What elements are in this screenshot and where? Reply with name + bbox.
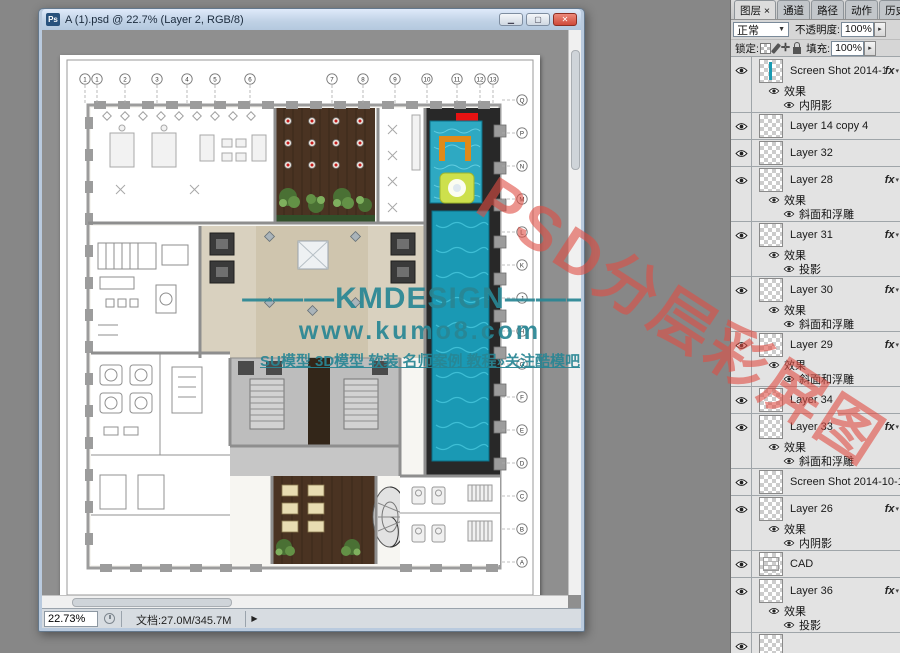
effect-item-row[interactable]: 投影	[731, 618, 900, 632]
visibility-eye-icon[interactable]	[735, 396, 748, 405]
scrollbar-thumb[interactable]	[72, 598, 232, 607]
svg-text:G: G	[520, 361, 525, 368]
tab-channels[interactable]: 通道	[777, 0, 810, 19]
layer-name[interactable]: Layer 33	[790, 421, 885, 433]
eye-column	[731, 414, 752, 440]
layer-name[interactable]: Layer 30	[790, 284, 885, 296]
effects-row[interactable]: 效果	[731, 248, 900, 262]
opacity-label: 不透明度:	[795, 22, 840, 37]
maximize-button[interactable]: ▢	[526, 13, 550, 26]
app-background: { "document_window": { "title": "A (1).p…	[0, 0, 900, 653]
svg-text:D: D	[520, 460, 525, 467]
floor-plan-image: 112345678910111213 QPNMLKJHGFEDCBA	[60, 55, 540, 600]
effects-row[interactable]: 效果	[731, 440, 900, 454]
layer-thumbnail[interactable]	[759, 333, 783, 357]
svg-text:Q: Q	[520, 97, 525, 104]
layer-thumbnail[interactable]	[759, 470, 783, 494]
effects-row[interactable]: 效果	[731, 522, 900, 536]
effect-item-row[interactable]: 斜面和浮雕	[731, 317, 900, 331]
lock-transparency-icon[interactable]	[760, 43, 771, 54]
horizontal-scrollbar[interactable]	[42, 595, 568, 608]
visibility-eye-icon[interactable]	[783, 210, 795, 218]
layer-row[interactable]: Layer 30fx▾	[731, 276, 900, 303]
layer-name[interactable]: Layer 14 copy 4	[790, 120, 900, 132]
layer-row[interactable]: Layer 14 copy 4	[731, 112, 900, 139]
svg-text:1: 1	[83, 77, 87, 84]
layer-row[interactable]: Layer 26fx▾	[731, 495, 900, 522]
visibility-eye-icon[interactable]	[735, 149, 748, 158]
fx-badge[interactable]: fx	[885, 65, 895, 77]
svg-text:2: 2	[123, 77, 127, 84]
visibility-eye-icon[interactable]	[768, 87, 780, 95]
psd-file-icon: Ps	[46, 13, 60, 26]
visibility-eye-icon[interactable]	[735, 231, 748, 240]
close-button[interactable]: ✕	[553, 13, 577, 26]
visibility-eye-icon[interactable]	[783, 375, 795, 383]
layer-row[interactable]: Layer 31fx▾	[731, 221, 900, 248]
svg-text:5: 5	[213, 77, 217, 84]
document-page: 112345678910111213 QPNMLKJHGFEDCBA	[60, 55, 540, 600]
svg-text:6: 6	[248, 77, 252, 84]
lock-pixels-brush-icon[interactable]	[771, 43, 781, 54]
layer-thumbnail[interactable]	[759, 388, 783, 412]
layer-name[interactable]: Layer 29	[790, 339, 885, 351]
effect-name: 斜面和浮雕	[799, 206, 854, 222]
svg-text:C: C	[520, 493, 525, 500]
layer-thumbnail[interactable]	[759, 141, 783, 165]
eye-column	[731, 578, 752, 604]
layer-thumbnail[interactable]	[759, 114, 783, 138]
fx-collapse-chevron-icon[interactable]: ▾	[895, 505, 899, 513]
fill-label: 填充:	[806, 41, 830, 56]
effect-name: 投影	[799, 261, 821, 277]
window-titlebar[interactable]: Ps A (1).psd @ 22.7% (Layer 2, RGB/8) ▁ …	[42, 9, 581, 30]
fill-value-field[interactable]: 100%	[831, 41, 864, 56]
svg-text:1: 1	[95, 77, 99, 84]
layer-name[interactable]: Layer 31	[790, 229, 885, 241]
visibility-eye-icon[interactable]	[735, 423, 748, 432]
layer-row[interactable]: Layer 34	[731, 386, 900, 413]
layer-name[interactable]: Screen Shot 2014-10-16 at 4.5...	[790, 476, 900, 488]
visibility-eye-icon[interactable]	[783, 457, 795, 465]
layer-name[interactable]: Layer 26	[790, 503, 885, 515]
eye-column	[731, 277, 752, 303]
visibility-eye-icon[interactable]	[783, 320, 795, 328]
svg-text:7: 7	[330, 77, 334, 84]
visibility-eye-icon[interactable]	[735, 286, 748, 295]
fx-collapse-chevron-icon[interactable]: ▾	[895, 286, 899, 294]
visibility-eye-icon[interactable]	[768, 251, 780, 259]
panel-tab-bar: 图层 × 通道 路径 动作 历史记录	[731, 0, 900, 20]
fx-badge[interactable]: fx	[885, 284, 895, 296]
effect-item-row[interactable]: 斜面和浮雕	[731, 454, 900, 468]
visibility-eye-icon[interactable]	[735, 505, 748, 514]
fx-collapse-chevron-icon[interactable]: ▾	[895, 176, 899, 184]
layers-panel: 图层 × 通道 路径 动作 历史记录 正常 ▼ 不透明度: 100% ▸ 锁定:…	[730, 0, 900, 653]
svg-text:10: 10	[424, 77, 431, 84]
fx-collapse-chevron-icon[interactable]: ▾	[895, 231, 899, 239]
layer-thumbnail[interactable]	[759, 497, 783, 521]
fx-badge[interactable]: fx	[885, 421, 895, 433]
layers-list: Screen Shot 2014-10-16 at ...fx▾效果内阴影Lay…	[731, 57, 900, 653]
effects-row[interactable]: 效果	[731, 358, 900, 372]
eye-column	[731, 633, 752, 653]
visibility-eye-icon[interactable]	[735, 478, 748, 487]
layer-thumbnail[interactable]	[759, 552, 783, 576]
visibility-eye-icon[interactable]	[735, 122, 748, 131]
layer-row[interactable]: Layer 33fx▾	[731, 413, 900, 440]
document-size-info: 文档:27.0M/345.7M	[121, 611, 246, 627]
lock-all-icon[interactable]	[793, 47, 801, 54]
layer-thumbnail[interactable]	[759, 415, 783, 439]
effect-name: 内阴影	[799, 97, 832, 113]
visibility-eye-icon[interactable]	[768, 525, 780, 533]
fx-collapse-chevron-icon[interactable]: ▾	[895, 341, 899, 349]
svg-text:12: 12	[477, 77, 484, 84]
visibility-eye-icon[interactable]	[768, 443, 780, 451]
fill-slider-button[interactable]: ▸	[864, 41, 876, 56]
effect-item-row[interactable]: 斜面和浮雕	[731, 372, 900, 386]
layer-row[interactable]: Layer 32	[731, 139, 900, 166]
effect-name: 斜面和浮雕	[799, 453, 854, 469]
svg-text:13: 13	[490, 77, 497, 84]
opacity-slider-button[interactable]: ▸	[874, 22, 886, 37]
layer-row[interactable]: Screen Shot 2014-10-16 at ...fx▾	[731, 57, 900, 84]
minimize-button[interactable]: ▁	[499, 13, 523, 26]
tab-layers[interactable]: 图层 ×	[734, 0, 776, 19]
layer-name[interactable]: Layer 36	[790, 585, 885, 597]
effects-row[interactable]: 效果	[731, 193, 900, 207]
svg-text:B: B	[520, 526, 524, 533]
status-flyout-arrow-icon[interactable]: ▶	[246, 614, 262, 623]
eye-column	[731, 222, 752, 248]
vertical-scrollbar[interactable]	[568, 30, 581, 595]
effect-item-row[interactable]: 投影	[731, 262, 900, 276]
svg-text:H: H	[520, 328, 524, 335]
svg-text:8: 8	[361, 77, 365, 84]
svg-text:J: J	[520, 295, 523, 302]
fx-collapse-chevron-icon[interactable]: ▾	[895, 67, 899, 75]
layer-thumbnail[interactable]	[759, 579, 783, 603]
blend-mode-value: 正常	[737, 22, 759, 38]
layer-name[interactable]: Layer 32	[790, 147, 900, 159]
layer-thumbnail[interactable]	[759, 223, 783, 247]
visibility-eye-icon[interactable]	[768, 607, 780, 615]
svg-text:9: 9	[393, 77, 397, 84]
layer-row[interactable]: Layer 28fx▾	[731, 166, 900, 193]
window-title: A (1).psd @ 22.7% (Layer 2, RGB/8)	[65, 14, 493, 26]
effect-item-row[interactable]: 内阴影	[731, 536, 900, 550]
effect-name: 斜面和浮雕	[799, 316, 854, 332]
layer-thumbnail[interactable]	[759, 634, 783, 653]
layer-thumbnail[interactable]	[759, 59, 783, 83]
thumbnail-content	[769, 62, 772, 80]
visibility-eye-icon[interactable]	[735, 560, 748, 569]
svg-text:4: 4	[185, 77, 189, 84]
eye-column	[731, 113, 752, 139]
effects-row[interactable]: 效果	[731, 604, 900, 618]
svg-text:P: P	[520, 130, 524, 137]
layer-thumbnail[interactable]	[759, 168, 783, 192]
layer-name[interactable]: Screen Shot 2014-10-16 at ...	[790, 65, 885, 77]
svg-text:M: M	[519, 196, 524, 203]
visibility-eye-icon[interactable]	[768, 306, 780, 314]
tab-history[interactable]: 历史记录	[879, 0, 900, 19]
visibility-eye-icon[interactable]	[768, 196, 780, 204]
layer-name[interactable]: Layer 34	[790, 394, 900, 406]
fx-badge[interactable]: fx	[885, 339, 895, 351]
eye-column	[731, 332, 752, 358]
svg-text:F: F	[520, 394, 524, 401]
version-cue-icon	[104, 613, 115, 624]
visibility-eye-icon[interactable]	[735, 66, 748, 75]
layer-row[interactable]: Screen Shot 2014-10-16 at 4.5...	[731, 468, 900, 495]
svg-text:N: N	[520, 163, 524, 170]
visibility-eye-icon[interactable]	[735, 341, 748, 350]
layer-row[interactable]: CAD	[731, 550, 900, 577]
layer-row[interactable]	[731, 632, 900, 653]
eye-column	[731, 387, 752, 413]
scrollbar-thumb[interactable]	[571, 50, 580, 170]
visibility-eye-icon[interactable]	[783, 265, 795, 273]
eye-column	[731, 167, 752, 193]
visibility-eye-icon[interactable]	[783, 101, 795, 109]
layer-name[interactable]: Layer 28	[790, 174, 885, 186]
svg-text:L: L	[520, 229, 524, 236]
svg-text:11: 11	[454, 77, 461, 84]
blend-mode-row: 正常 ▼ 不透明度: 100% ▸	[731, 20, 900, 40]
visibility-eye-icon[interactable]	[783, 621, 795, 629]
visibility-eye-icon[interactable]	[735, 642, 748, 651]
visibility-eye-icon[interactable]	[783, 539, 795, 547]
chevron-down-icon: ▼	[778, 26, 785, 33]
lock-position-icon[interactable]: ✛	[781, 43, 790, 54]
layer-row[interactable]: Layer 29fx▾	[731, 331, 900, 358]
lock-label: 锁定:	[735, 41, 759, 56]
fx-collapse-chevron-icon[interactable]: ▾	[895, 587, 899, 595]
effect-name: 内阴影	[799, 535, 832, 551]
effect-item-row[interactable]: 斜面和浮雕	[731, 207, 900, 221]
fx-badge[interactable]: fx	[885, 229, 895, 241]
status-bar: 文档:27.0M/345.7M ▶	[42, 608, 581, 628]
fx-badge[interactable]: fx	[885, 585, 895, 597]
effect-item-row[interactable]: 内阴影	[731, 98, 900, 112]
zoom-level-field[interactable]	[44, 611, 98, 627]
effect-name: 斜面和浮雕	[799, 371, 854, 387]
fx-badge[interactable]: fx	[885, 503, 895, 515]
visibility-eye-icon[interactable]	[768, 361, 780, 369]
canvas-area[interactable]: 112345678910111213 QPNMLKJHGFEDCBA ———KM…	[42, 30, 581, 608]
lock-row: 锁定: ✛ 填充: 100% ▸	[731, 40, 900, 57]
svg-text:E: E	[520, 427, 524, 434]
eye-column	[731, 140, 752, 166]
eye-column	[731, 496, 752, 522]
tab-actions[interactable]: 动作	[845, 0, 878, 19]
eye-column	[731, 57, 752, 84]
visibility-eye-icon[interactable]	[735, 176, 748, 185]
eye-column	[731, 551, 752, 577]
opacity-value-field[interactable]: 100%	[841, 22, 874, 37]
thumbnail-content	[763, 557, 779, 571]
effects-row[interactable]: 效果	[731, 84, 900, 98]
effect-name: 投影	[799, 617, 821, 633]
eye-column	[731, 469, 752, 495]
svg-text:3: 3	[155, 77, 159, 84]
blend-mode-select[interactable]: 正常 ▼	[733, 22, 789, 37]
layer-name[interactable]: CAD	[790, 558, 900, 570]
fx-collapse-chevron-icon[interactable]: ▾	[895, 423, 899, 431]
layer-row[interactable]: Layer 36fx▾	[731, 577, 900, 604]
visibility-eye-icon[interactable]	[735, 587, 748, 596]
tab-paths[interactable]: 路径	[811, 0, 844, 19]
effects-row[interactable]: 效果	[731, 303, 900, 317]
document-window: Ps A (1).psd @ 22.7% (Layer 2, RGB/8) ▁ …	[38, 8, 585, 632]
layer-thumbnail[interactable]	[759, 278, 783, 302]
fx-badge[interactable]: fx	[885, 174, 895, 186]
